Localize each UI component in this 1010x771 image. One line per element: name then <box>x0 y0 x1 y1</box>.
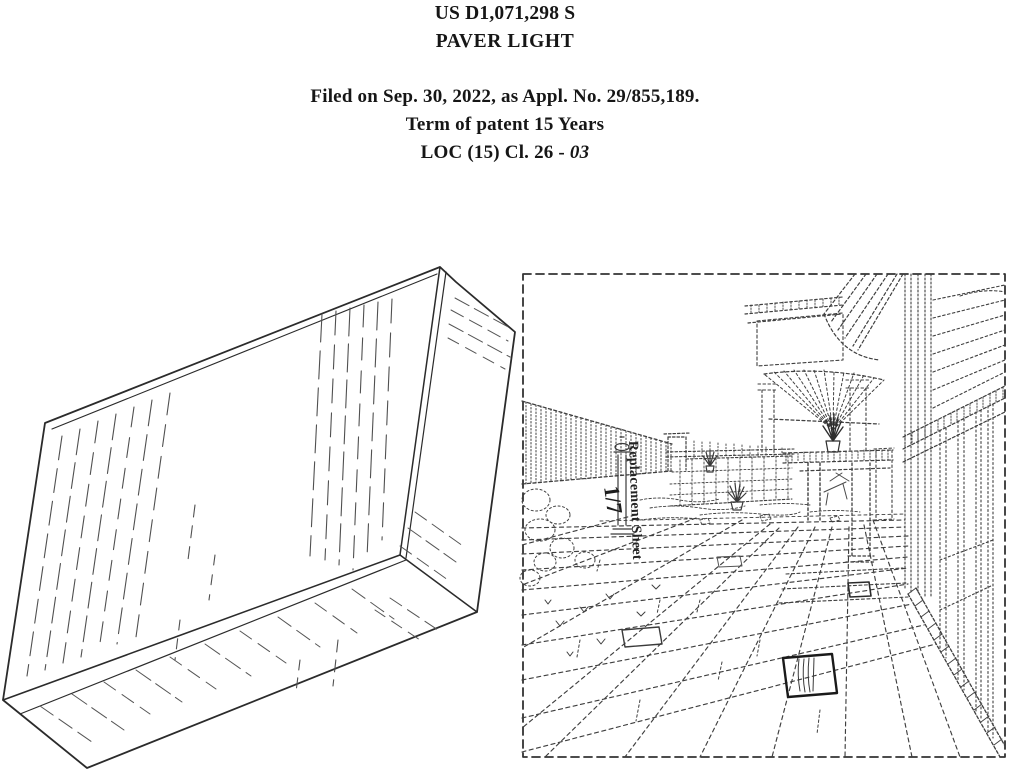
figure-border <box>523 274 1005 757</box>
highlighted-paver-light <box>783 654 837 697</box>
environment-drawing: 1/7 Replacement Sheet <box>519 268 1010 762</box>
stone-wall <box>664 433 794 506</box>
sheet-number-label: 1/7 <box>599 484 628 515</box>
patent-number: US D1,071,298 S <box>0 3 1010 25</box>
loc-line: LOC (15) Cl. 26 - 03 <box>0 142 1010 164</box>
wall-base <box>908 588 1005 757</box>
paver-floor-courses <box>522 520 936 752</box>
building-corner <box>905 274 931 597</box>
small-solid-paver <box>848 582 871 597</box>
clapboard-wall <box>933 285 1005 408</box>
perspective-drawing <box>0 258 520 771</box>
paver-light-environment-figure: 1/7 Replacement Sheet <box>519 268 1010 762</box>
term-line: Term of patent 15 Years <box>0 114 1010 136</box>
patent-title: PAVER LIGHT <box>0 31 1010 53</box>
columns <box>758 380 894 562</box>
fence <box>522 401 672 484</box>
filed-line: Filed on Sep. 30, 2022, as Appl. No. 29/… <box>0 86 1010 108</box>
paver-floor-joints <box>522 515 960 757</box>
box-outline <box>3 267 515 768</box>
porch-windows <box>940 404 993 738</box>
paver-light-perspective-figure <box>0 258 520 771</box>
pergola <box>745 297 843 366</box>
loc-class: 03 <box>570 142 589 163</box>
roof-beams <box>824 274 903 360</box>
porch-steps <box>779 568 908 603</box>
loc-prefix: LOC (15) Cl. 26 - <box>421 142 570 163</box>
sheet-label: Replacement Sheet <box>625 441 644 561</box>
chair <box>824 473 849 505</box>
patent-document-page: US D1,071,298 S PAVER LIGHT Filed on Sep… <box>0 0 1010 771</box>
